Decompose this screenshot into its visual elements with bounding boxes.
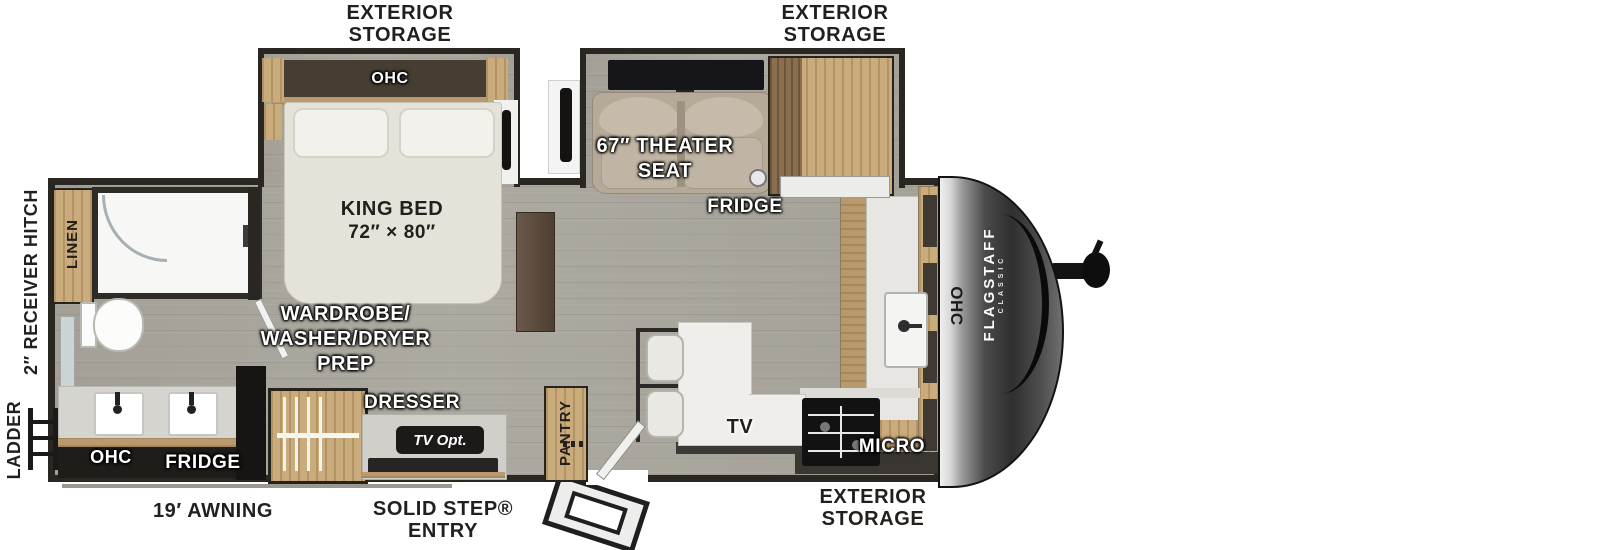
wardrobe-rod — [277, 433, 359, 438]
fridge-cabinet — [768, 56, 894, 196]
shower-glass-door — [102, 195, 167, 262]
label-linen: LINEN — [62, 194, 80, 294]
label-theater-seat: 67″ THEATER SEAT — [575, 134, 755, 184]
wardrobe-hanger — [307, 397, 310, 471]
label-exterior-storage-top-left: EXTERIOR STORAGE — [300, 2, 500, 46]
brand-subname: CLASSIC — [998, 199, 1005, 369]
pillow — [399, 108, 495, 158]
nightstand — [264, 104, 282, 140]
label-micro: MICRO — [832, 436, 952, 458]
label-line: 67″ THEATER — [575, 134, 755, 159]
label-line: STORAGE — [300, 24, 500, 46]
label-awning: 19′ AWNING — [113, 500, 313, 522]
ladder-rung — [32, 420, 54, 424]
label-line: SEAT — [575, 159, 755, 184]
bedroom-corner-cabinet — [486, 58, 508, 102]
dresser-wood-edge — [362, 472, 505, 478]
label-tv-opt: TV Opt. — [413, 432, 466, 449]
floorplan-canvas: EXTERIOR STORAGE EXTERIOR STORAGE EXTERI… — [0, 0, 1600, 550]
pillow — [293, 108, 389, 158]
label-fridge-rear: FRIDGE — [148, 452, 258, 474]
shower — [92, 187, 262, 299]
label-line: EXTERIOR — [773, 486, 973, 508]
label-wardrobe: WARDROBE/ WASHER/DRYER PREP — [238, 302, 453, 377]
label-line: KING BED — [300, 198, 484, 220]
bedroom-window — [502, 110, 511, 170]
brand-name: FLAGSTAFF — [981, 199, 998, 369]
label-line: WASHER/DRYER — [238, 327, 453, 352]
wardrobe-hanger — [319, 397, 322, 471]
stove-counter-strip — [800, 388, 920, 398]
label-line: PREP — [238, 352, 453, 377]
seat-back — [683, 97, 763, 137]
label-line: 72″ × 80″ — [300, 222, 484, 244]
label-king-bed: KING BED 72″ × 80″ — [300, 198, 484, 244]
entry-door-opening — [586, 470, 648, 485]
label-pantry: PANTRY — [555, 383, 573, 483]
label-line: WARDROBE/ — [238, 302, 453, 327]
vanity-sink — [94, 392, 144, 436]
awning-rail — [62, 484, 452, 488]
faucet — [189, 392, 194, 405]
theater-tv — [608, 60, 764, 90]
bath-partition-upper — [248, 187, 260, 300]
kitchen-sink — [884, 292, 928, 368]
faucet — [115, 392, 120, 405]
faucet-base — [113, 405, 122, 414]
fridge-front — [780, 176, 890, 198]
slide-window — [560, 88, 572, 162]
label-exterior-storage-bottom: EXTERIOR STORAGE — [773, 486, 973, 530]
label-fridge-kitchen: FRIDGE — [685, 196, 805, 218]
faucet-base — [187, 405, 196, 414]
kitchen-tall-cabinet — [840, 198, 867, 390]
label-ohc-kitchen: OHC — [947, 248, 967, 364]
label-line: SOLID STEP® — [353, 498, 533, 520]
bedroom-tv-wardrobe-wall — [516, 212, 555, 332]
entry-step-tread — [564, 491, 628, 536]
label-line: ENTRY — [353, 520, 533, 542]
cabinet-door-insert — [923, 195, 937, 247]
label-ladder: LADDER — [3, 392, 21, 488]
tv-opt-badge: TV Opt. — [396, 426, 484, 454]
stool-seat — [646, 334, 684, 382]
fridge-cabinet-side — [770, 58, 802, 194]
bedroom-ohc-shelf: OHC — [272, 60, 508, 98]
ladder-rung — [32, 452, 54, 456]
wardrobe-hanger — [295, 397, 298, 471]
label-ohc-rear: OHC — [66, 446, 156, 468]
label-exterior-storage-top-right: EXTERIOR STORAGE — [735, 2, 935, 46]
wardrobe-hanger — [283, 397, 286, 471]
vanity-sink — [168, 392, 218, 436]
label-line: STORAGE — [773, 508, 973, 530]
label-tv-island: TV — [700, 416, 780, 438]
faucet — [908, 324, 922, 328]
stool-seat — [646, 390, 684, 438]
label-line: EXTERIOR — [300, 2, 500, 24]
bedroom-corner-cabinet — [262, 58, 284, 102]
ladder-rung — [32, 436, 54, 440]
brand-logo: FLAGSTAFF CLASSIC — [981, 199, 1025, 369]
label-receiver-hitch: 2″ RECEIVER HITCH — [20, 182, 40, 382]
stove-burner — [820, 422, 830, 432]
label-line: STORAGE — [735, 24, 935, 46]
toilet-bowl — [93, 298, 144, 352]
label-dresser: DRESSER — [352, 392, 472, 414]
seat-back — [599, 97, 679, 137]
label-line: EXTERIOR — [735, 2, 935, 24]
label-ohc-bedroom: OHC — [272, 60, 508, 98]
label-solid-step-entry: SOLID STEP® ENTRY — [353, 498, 533, 542]
ladder-graphic — [28, 408, 58, 470]
